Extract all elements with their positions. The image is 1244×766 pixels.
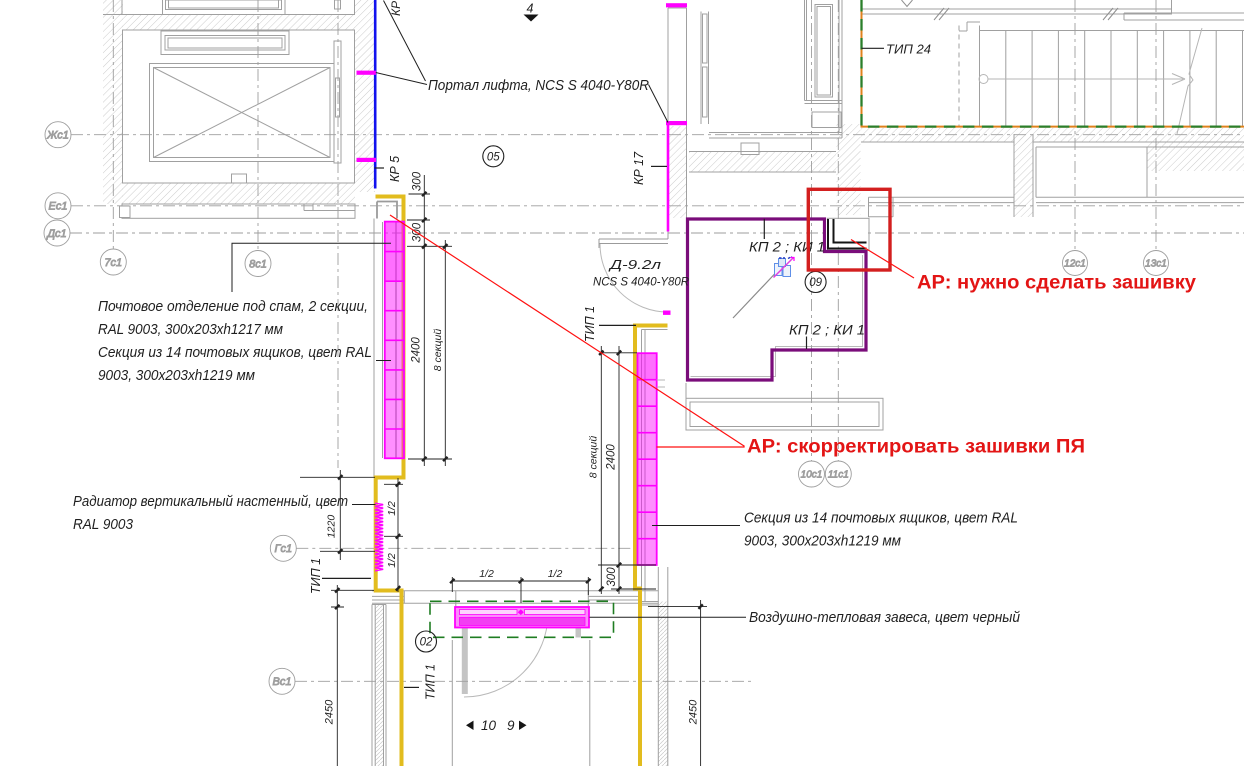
svg-text:Радиатор вертикальный настенны: Радиатор вертикальный настенный, цвет — [73, 494, 348, 510]
svg-text:2400: 2400 — [606, 444, 618, 471]
svg-text:Секция из 14 почтовых ящиков,: Секция из 14 почтовых ящиков, цвет RAL — [744, 511, 1018, 527]
svg-text:9003, 300х203хh1219 мм: 9003, 300х203хh1219 мм — [744, 534, 901, 550]
svg-text:Гс1: Гс1 — [274, 543, 292, 555]
svg-text:300: 300 — [412, 222, 424, 242]
svg-text:05: 05 — [487, 151, 500, 163]
svg-text:Ес1: Ес1 — [49, 201, 68, 213]
svg-text:8 секций: 8 секций — [588, 436, 600, 479]
svg-text:1/2: 1/2 — [548, 568, 563, 580]
svg-text:Д-9.2л: Д-9.2л — [607, 258, 661, 272]
svg-text:09: 09 — [809, 277, 822, 289]
svg-text:Вс1: Вс1 — [273, 676, 292, 688]
svg-text:Воздушно-тепловая завеса, цвет: Воздушно-тепловая завеса, цвет черный — [749, 610, 1020, 626]
svg-text:АР: скорректировать зашивки ПЯ: АР: скорректировать зашивки ПЯ — [747, 436, 1085, 458]
svg-text:8 секций: 8 секций — [432, 329, 444, 372]
svg-text:300: 300 — [606, 567, 618, 587]
svg-text:ТИП 1: ТИП 1 — [309, 558, 323, 594]
svg-text:RAL 9003, 300х203хh1217 мм: RAL 9003, 300х203хh1217 мм — [98, 322, 283, 338]
svg-text:КР 17: КР 17 — [632, 151, 646, 185]
svg-text:1/2: 1/2 — [479, 568, 494, 580]
svg-text:Почтовое отделение под спам, 2: Почтовое отделение под спам, 2 секции, — [98, 299, 368, 315]
svg-text:Портал лифта, NCS S 4040-Y80R: Портал лифта, NCS S 4040-Y80R — [428, 77, 649, 94]
svg-text:12с1: 12с1 — [1064, 259, 1086, 270]
svg-text:ТИП 24: ТИП 24 — [886, 42, 931, 57]
svg-text:Дс1: Дс1 — [45, 228, 66, 240]
svg-text:7с1: 7с1 — [104, 257, 122, 269]
svg-text:КР 5: КР 5 — [388, 156, 402, 182]
svg-text:ТИП 1: ТИП 1 — [583, 306, 597, 342]
svg-text:2450: 2450 — [688, 699, 700, 725]
svg-text:11с1: 11с1 — [828, 470, 849, 481]
svg-text:Жс1: Жс1 — [46, 130, 69, 142]
svg-text:8с1: 8с1 — [249, 258, 267, 270]
svg-text:02: 02 — [420, 637, 433, 649]
svg-text:КП 2 ; КИ 1: КП 2 ; КИ 1 — [789, 323, 865, 338]
svg-text:КР: КР — [389, 1, 403, 16]
svg-text:9003, 300х203хh1219 мм: 9003, 300х203хh1219 мм — [98, 368, 255, 384]
svg-text:1/2: 1/2 — [386, 501, 398, 516]
svg-text:RAL 9003: RAL 9003 — [73, 517, 133, 533]
svg-text:13с1: 13с1 — [1145, 259, 1167, 270]
svg-text:2400: 2400 — [411, 337, 423, 364]
svg-text:4: 4 — [527, 2, 534, 16]
svg-text:10с1: 10с1 — [801, 470, 823, 481]
svg-text:Секция из 14 почтовых ящиков,: Секция из 14 почтовых ящиков, цвет RAL — [98, 345, 372, 361]
svg-text:ТИП 1: ТИП 1 — [424, 664, 438, 700]
svg-text:NCS S 4040-Y80R: NCS S 4040-Y80R — [593, 275, 689, 289]
svg-text:1220: 1220 — [326, 515, 338, 539]
svg-text:2450: 2450 — [324, 699, 336, 725]
svg-text:1/2: 1/2 — [386, 553, 398, 568]
svg-text:9: 9 — [507, 718, 515, 733]
svg-text:10: 10 — [481, 718, 497, 733]
svg-text:АР: нужно сделать зашивку: АР: нужно сделать зашивку — [917, 272, 1196, 294]
svg-text:КП 2 ; КИ 1: КП 2 ; КИ 1 — [749, 240, 825, 255]
svg-text:300: 300 — [412, 171, 424, 191]
